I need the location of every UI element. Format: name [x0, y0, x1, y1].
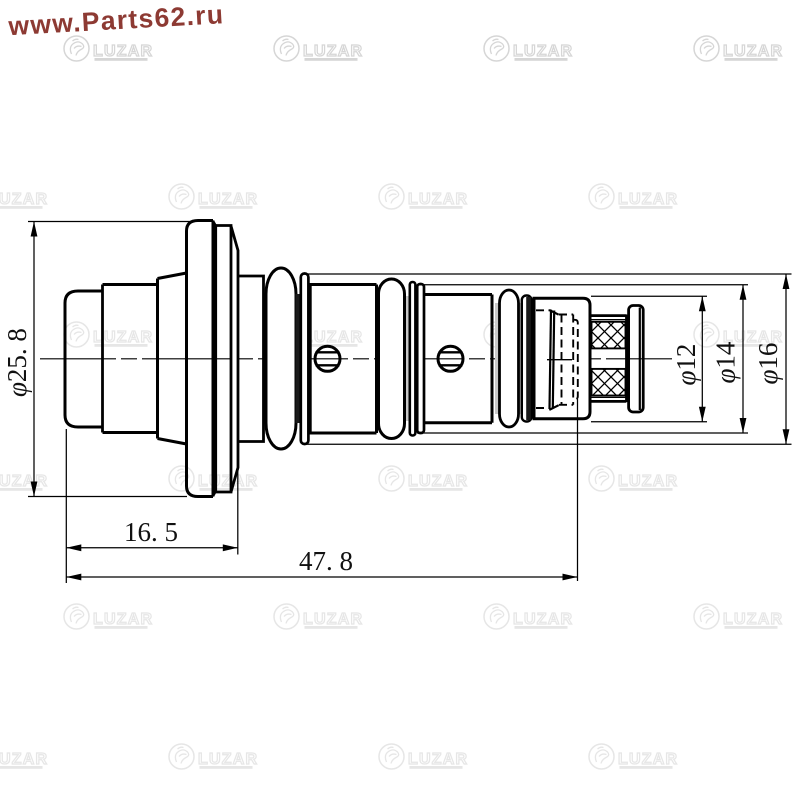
svg-text:LUZAR: LUZAR: [408, 191, 468, 208]
svg-text:www.Parts62.ru: www.Parts62.ru: [7, 0, 225, 41]
svg-text:LUZAR: LUZAR: [0, 751, 48, 768]
svg-text:LUZAR: LUZAR: [198, 473, 258, 490]
svg-text:φ25. 8: φ25. 8: [2, 328, 32, 397]
svg-text:LUZAR: LUZAR: [408, 473, 468, 490]
svg-text:16. 5: 16. 5: [124, 517, 178, 547]
svg-text:LUZAR: LUZAR: [93, 611, 153, 628]
svg-text:LUZAR: LUZAR: [198, 751, 258, 768]
svg-text:φ12: φ12: [671, 344, 701, 386]
svg-text:LUZAR: LUZAR: [0, 473, 48, 490]
svg-text:φ16: φ16: [753, 343, 783, 385]
svg-text:LUZAR: LUZAR: [198, 191, 258, 208]
svg-text:LUZAR: LUZAR: [408, 751, 468, 768]
svg-text:φ14: φ14: [711, 341, 741, 383]
svg-text:LUZAR: LUZAR: [618, 191, 678, 208]
svg-text:LUZAR: LUZAR: [0, 191, 48, 208]
svg-text:LUZAR: LUZAR: [303, 329, 363, 346]
svg-text:LUZAR: LUZAR: [93, 43, 153, 60]
svg-text:LUZAR: LUZAR: [303, 611, 363, 628]
svg-text:LUZAR: LUZAR: [723, 611, 783, 628]
svg-text:LUZAR: LUZAR: [513, 43, 573, 60]
svg-text:47. 8: 47. 8: [299, 546, 353, 576]
svg-text:LUZAR: LUZAR: [513, 611, 573, 628]
svg-text:LUZAR: LUZAR: [723, 43, 783, 60]
svg-text:LUZAR: LUZAR: [618, 473, 678, 490]
svg-text:LUZAR: LUZAR: [303, 43, 363, 60]
svg-text:LUZAR: LUZAR: [618, 751, 678, 768]
